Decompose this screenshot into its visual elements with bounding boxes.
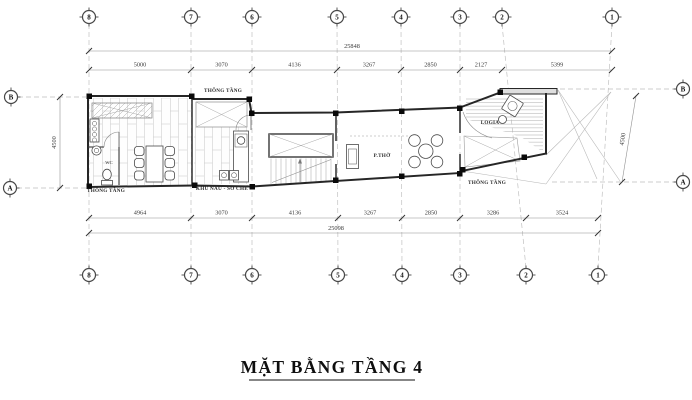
- wc-sink: [92, 146, 101, 155]
- grid-bubble-bottom-1: 1: [589, 266, 608, 285]
- label-void-top: THÔNG TẦNG: [204, 86, 242, 94]
- grid-bubble-bottom-1-label: 1: [596, 271, 600, 279]
- dim-top-seg-7: 5399: [551, 62, 564, 69]
- staircase: [271, 159, 331, 185]
- grid-bubble-top-3: 3: [451, 8, 470, 27]
- dining-table-set: [135, 146, 175, 182]
- altar-cabinet: [347, 145, 359, 169]
- void-kitchen-top: [196, 102, 247, 127]
- grid-bubble-top-8-label: 8: [87, 13, 91, 21]
- grid-bubble-top-1-label: 1: [610, 13, 614, 21]
- grid-bubble-top-6-label: 6: [250, 13, 254, 21]
- loggia-sink: [499, 116, 507, 124]
- dim-top-seg-2: 3070: [215, 62, 228, 69]
- dim-bot-seg-4: 3267: [364, 210, 377, 217]
- grid-bubble-top-8: 8: [80, 8, 99, 27]
- grid-bubble-right-B: B: [674, 80, 690, 99]
- grid-bubble-right-A-label: A: [680, 178, 685, 186]
- grid-bubble-bottom-6: 6: [243, 266, 262, 285]
- dimension-right: 4500: [619, 93, 639, 185]
- dim-right-span: 4500: [619, 132, 628, 146]
- grid-bubble-left-A-label: A: [7, 184, 12, 192]
- grid-bubble-top-4: 4: [392, 8, 411, 27]
- grid-bubble-top-2-label: 2: [500, 13, 504, 21]
- grid-bubble-bottom-6-label: 6: [250, 271, 254, 279]
- grid-bubble-right-B-label: B: [681, 85, 686, 93]
- grid-bubble-bottom-5: 5: [329, 266, 348, 285]
- label-kitchen: KHU NẤU - SƠ CHẾ: [196, 184, 248, 192]
- grid-bubble-bottom-4: 4: [393, 266, 412, 285]
- grid-bubble-bottom-7-label: 7: [189, 271, 193, 279]
- grid-bubble-bottom-2: 2: [517, 266, 536, 285]
- dim-bot-seg-1: 4964: [134, 210, 147, 217]
- grid-bubble-left-B: B: [5, 88, 21, 107]
- stair-arrow: [298, 159, 302, 164]
- label-loggia: LOGIA: [481, 120, 500, 126]
- grid-bubble-top-7: 7: [182, 8, 201, 27]
- grid-bubble-bottom-2-label: 2: [524, 271, 528, 279]
- label-wc: WC: [105, 160, 112, 165]
- grid-bubble-bottom-4-label: 4: [400, 271, 404, 279]
- grid-bubble-bottom-3: 3: [451, 266, 470, 285]
- dim-top-seg-6: 2127: [475, 62, 488, 69]
- grid-bubble-left-B-label: B: [9, 93, 14, 101]
- label-void-bottom-left: THÔNG TẦNG: [87, 186, 125, 194]
- grid-bubble-bottom-3-label: 3: [458, 271, 462, 279]
- dim-top-seg-4: 3267: [363, 62, 376, 69]
- floor-plan-canvas: 25848 5000 3070 4136 3267 2850 2127 5399…: [0, 0, 692, 400]
- dimension-left: 4500: [51, 94, 63, 191]
- grid-bubble-right-A: A: [674, 173, 690, 192]
- grid-bubble-top-7-label: 7: [189, 13, 193, 21]
- dim-bot-seg-7: 3524: [556, 210, 569, 217]
- altar-table-set: [409, 135, 443, 168]
- dim-bottom-overall: 25098: [328, 225, 344, 232]
- dim-top-overall: 25848: [344, 43, 360, 50]
- dim-left-span: 4500: [51, 136, 58, 149]
- grid-bubble-top-6: 6: [243, 8, 262, 27]
- grid-bubble-top-5-label: 5: [335, 13, 339, 21]
- dim-top-seg-3: 4136: [288, 62, 301, 69]
- wc-toilet: [102, 169, 113, 185]
- void-top-left: [92, 103, 152, 118]
- grid-bubble-top-3-label: 3: [458, 13, 462, 21]
- grid-bubble-bottom-8-label: 8: [87, 271, 91, 279]
- grid-bubble-top-4-label: 4: [399, 13, 403, 21]
- dim-bot-seg-3: 4136: [289, 210, 302, 217]
- label-void-right: THÔNG TẦNG: [468, 178, 506, 186]
- dim-top-seg-1: 5000: [134, 62, 147, 69]
- drawing-title-text: MẶT BẰNG TẦNG 4: [241, 357, 424, 377]
- void-right: [464, 136, 520, 167]
- dimension-bottom: 4964 3070 4136 3267 2850 3286 3524 25098: [86, 210, 601, 237]
- label-altar-room: P.THỜ: [374, 151, 391, 159]
- grid-bubble-top-2: 2: [493, 8, 512, 27]
- grid-bubble-bottom-7: 7: [182, 266, 201, 285]
- grid-bubble-bottom-8: 8: [80, 266, 99, 285]
- grid-bubble-bottom-5-label: 5: [336, 271, 340, 279]
- dim-bot-seg-2: 3070: [215, 210, 228, 217]
- grid-bubble-left-A: A: [4, 179, 20, 198]
- dim-bot-seg-6: 3286: [487, 210, 500, 217]
- void-stairwell: [269, 134, 333, 157]
- dimension-top: 25848 5000 3070 4136 3267 2850 2127 5399: [86, 43, 615, 73]
- grid-bubble-top-5: 5: [328, 8, 347, 27]
- drawing-title: MẶT BẰNG TẦNG 4: [241, 357, 424, 380]
- kitchen-sink: [237, 137, 245, 145]
- grid-bubble-top-1: 1: [603, 8, 622, 27]
- dim-bot-seg-5: 2850: [425, 210, 438, 217]
- dim-top-seg-5: 2850: [424, 62, 437, 69]
- floor-plan-drawing: 25848 5000 3070 4136 3267 2850 2127 5399…: [0, 0, 692, 400]
- loggia-parapet: [500, 89, 557, 95]
- wc-shelf: [90, 119, 99, 142]
